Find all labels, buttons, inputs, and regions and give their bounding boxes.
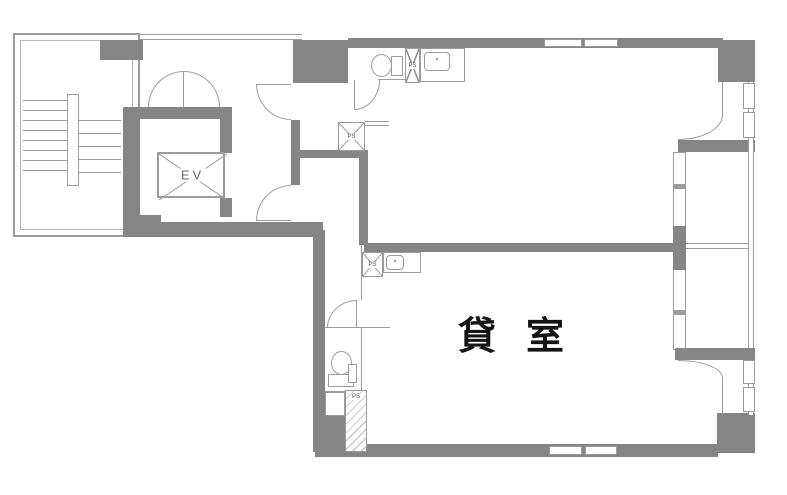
top-window (544, 39, 582, 47)
stair-tread (23, 140, 69, 141)
pipe-shaft-lower-room: PS (362, 252, 383, 277)
top-window (584, 39, 618, 47)
side-window (743, 83, 755, 109)
floor-plan: EV PS PS PS (0, 0, 787, 495)
stair-tread (23, 120, 69, 121)
pipe-shaft-label: PS (407, 63, 417, 69)
door-swing-arc (256, 84, 291, 120)
pipe-shaft-label: PS (346, 134, 356, 140)
stair-tread (23, 150, 69, 151)
door-swing-arc (256, 185, 291, 221)
pillar-top-right (718, 40, 755, 82)
stair-tread (23, 110, 69, 111)
toilet-bowl (371, 54, 392, 77)
bottom-window (585, 446, 617, 455)
door-swing-arc (354, 80, 380, 110)
stair-tread (23, 130, 69, 131)
pillar-top-left (100, 40, 143, 60)
window-wall-junction (673, 226, 686, 270)
toilet-room-wall-line (325, 327, 390, 328)
toilet-room-wall-line (361, 328, 362, 392)
ev-shaft-wall-right (220, 198, 232, 217)
pipe-shaft-upper: PS (405, 48, 420, 83)
stair-tread (79, 172, 121, 173)
stair-tread (79, 159, 121, 160)
balcony-divider (686, 243, 748, 249)
bay-wall-top (678, 140, 755, 152)
stair-tread (23, 170, 69, 171)
double-door-arc-right (184, 71, 220, 107)
room-label: 貸室 (458, 318, 594, 356)
curved-wall-bottom (678, 360, 723, 415)
stair-tread (79, 120, 121, 121)
bay-wall-bottom (675, 348, 755, 360)
window-mullion (673, 184, 686, 189)
stair-tread (79, 133, 121, 134)
sink-upper (424, 52, 450, 71)
stair-tread (23, 160, 69, 161)
door-leaf (356, 300, 357, 328)
side-window (743, 360, 755, 384)
stair-tread (79, 146, 121, 147)
double-door-arc-left (148, 71, 184, 107)
window-mullion (673, 310, 686, 315)
ev-shaft-wall-right (220, 119, 232, 153)
faucet-dot (436, 58, 438, 60)
bottom-exterior-wall (315, 444, 718, 457)
toilet-room-wall-line (378, 79, 407, 80)
wing-left-wall (313, 230, 325, 418)
double-door-center-line (183, 71, 184, 107)
toilet-cistern (348, 364, 357, 383)
pillar-bottom-right (717, 413, 755, 453)
elevator-car: EV (157, 152, 225, 198)
central-dividing-wall (364, 243, 684, 252)
partition-stub-line (365, 121, 389, 126)
stair-landing-stringer (67, 94, 79, 186)
ev-shaft-wall-left (123, 107, 140, 230)
door-swing-arc (327, 300, 357, 328)
pipe-shaft-bottom: PS (345, 390, 367, 452)
pipe-shaft-label: PS (367, 262, 377, 268)
toilet-tank (391, 56, 403, 76)
stair-tread (23, 100, 69, 101)
duct-block-toilet (293, 40, 348, 83)
closet-box (325, 392, 345, 416)
bottom-window (549, 446, 582, 455)
upper-room-left-wall (359, 150, 368, 245)
ev-shaft-wall-top (140, 107, 232, 119)
faucet-dot (394, 260, 396, 262)
elevator-label: EV (176, 169, 206, 182)
ev-hall-top-wall (140, 34, 302, 40)
sink-lower (386, 255, 404, 270)
side-window (743, 112, 755, 138)
pipe-shaft-label: PS (351, 394, 361, 400)
side-window (743, 387, 755, 412)
top-exterior-wall (348, 38, 723, 48)
hall-right-wall (291, 222, 300, 237)
pipe-shaft-corridor: PS (338, 122, 365, 151)
vestibule-wall (297, 150, 365, 158)
curved-wall-top (678, 82, 723, 140)
